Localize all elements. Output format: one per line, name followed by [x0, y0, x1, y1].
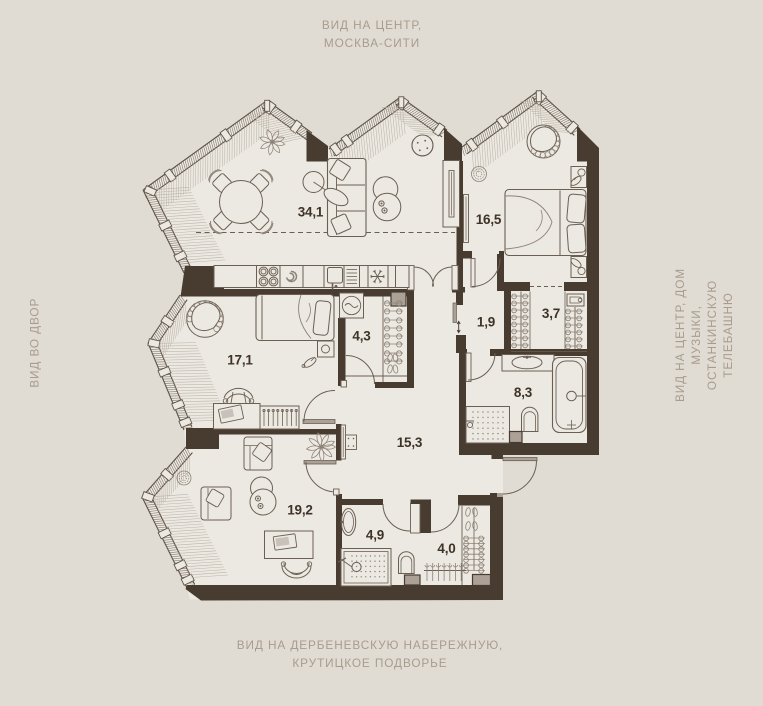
svg-text:4,0: 4,0	[437, 541, 455, 556]
svg-text:34,1: 34,1	[298, 205, 324, 220]
svg-text:3,7: 3,7	[542, 306, 560, 321]
svg-text:4,3: 4,3	[352, 329, 371, 344]
svg-text:8,3: 8,3	[514, 385, 533, 400]
svg-text:15,3: 15,3	[397, 435, 423, 450]
svg-text:1,9: 1,9	[477, 315, 495, 330]
svg-text:19,2: 19,2	[287, 503, 312, 518]
svg-text:17,1: 17,1	[227, 353, 253, 368]
svg-text:4,9: 4,9	[366, 528, 384, 543]
svg-text:16,5: 16,5	[476, 212, 502, 227]
